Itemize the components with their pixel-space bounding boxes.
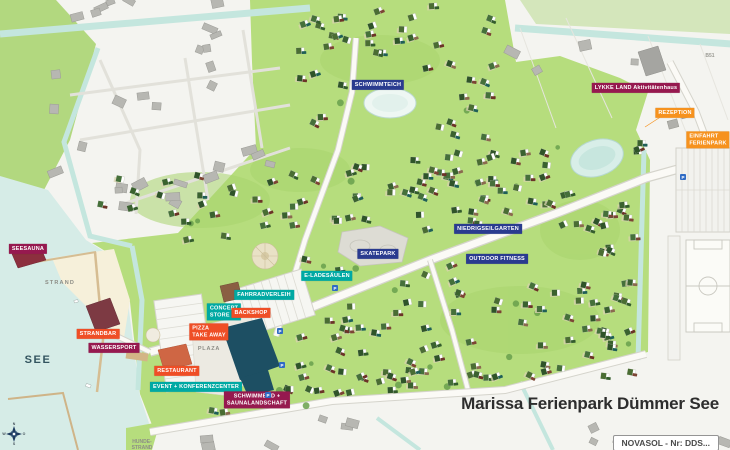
compass-point: O [23,432,26,436]
poi-label-seesauna: SEESAUNA [9,244,47,254]
poi-label-strandbar: STRANDBAR [77,329,120,339]
poi-label-rezeption: REZEPTION [655,108,694,118]
text-plaza: PLAZA [198,346,220,352]
poi-label-restaurant: RESTAURANT [154,366,199,376]
text-b51: B51 [705,53,714,59]
novasol-badge[interactable]: NOVASOL - Nr: DDS... [613,435,719,450]
parking-icon: P [680,174,686,180]
poi-label-e-ladesaeulen: E-LADESÄULEN [301,271,352,281]
poi-label-outdoor-fitness: OUTDOOR FITNESS [466,254,528,264]
parking-icon: P [277,328,283,334]
poi-label-schwimmbad-saunalandschaft: SCHWIMMBAD + SAUNALANDSCHAFT [224,391,290,408]
poi-label-lykke-land-aktivitaetenhaus: LYKKE LAND Aktivitätenhaus [592,83,680,93]
park-map: SEESAUNASTRANDBARWASSERSPORTRESTAURANTEV… [0,0,730,450]
map-title-block: Marissa Ferienpark Dümmer See NOVASOL - … [461,394,719,450]
poi-label-niedrigseilgarten: NIEDRIGSEILGARTEN [454,224,522,234]
compass-point: S [13,442,15,446]
poi-label-pizza-take-away: PIZZA TAKE AWAY [189,323,228,340]
compass-point: N [13,422,16,426]
text-strand: STRAND [45,280,75,286]
labels-layer: SEESAUNASTRANDBARWASSERSPORTRESTAURANTEV… [0,0,730,450]
poi-label-einfahrt-ferienpark: EINFAHRT FERIENPARK [686,131,729,148]
parking-icon: P [279,362,285,368]
text-hunde-strand: HUNDE- STRAND [132,439,153,450]
parking-icon: P [332,285,338,291]
poi-label-wassersport: WASSERSPORT [89,343,140,353]
poi-label-backshop: BACKSHOP [231,308,270,318]
compass-point: W [2,432,5,436]
poi-label-skatepark: SKATEPARK [357,249,398,259]
poi-label-schwimmteich: SCHWIMMTEICH [352,80,404,90]
poi-label-fahrradverleih: FAHRRADVERLEIH [234,290,294,300]
text-see: SEE [25,354,52,366]
map-title: Marissa Ferienpark Dümmer See [461,394,719,414]
parking-icon: P [265,392,271,398]
